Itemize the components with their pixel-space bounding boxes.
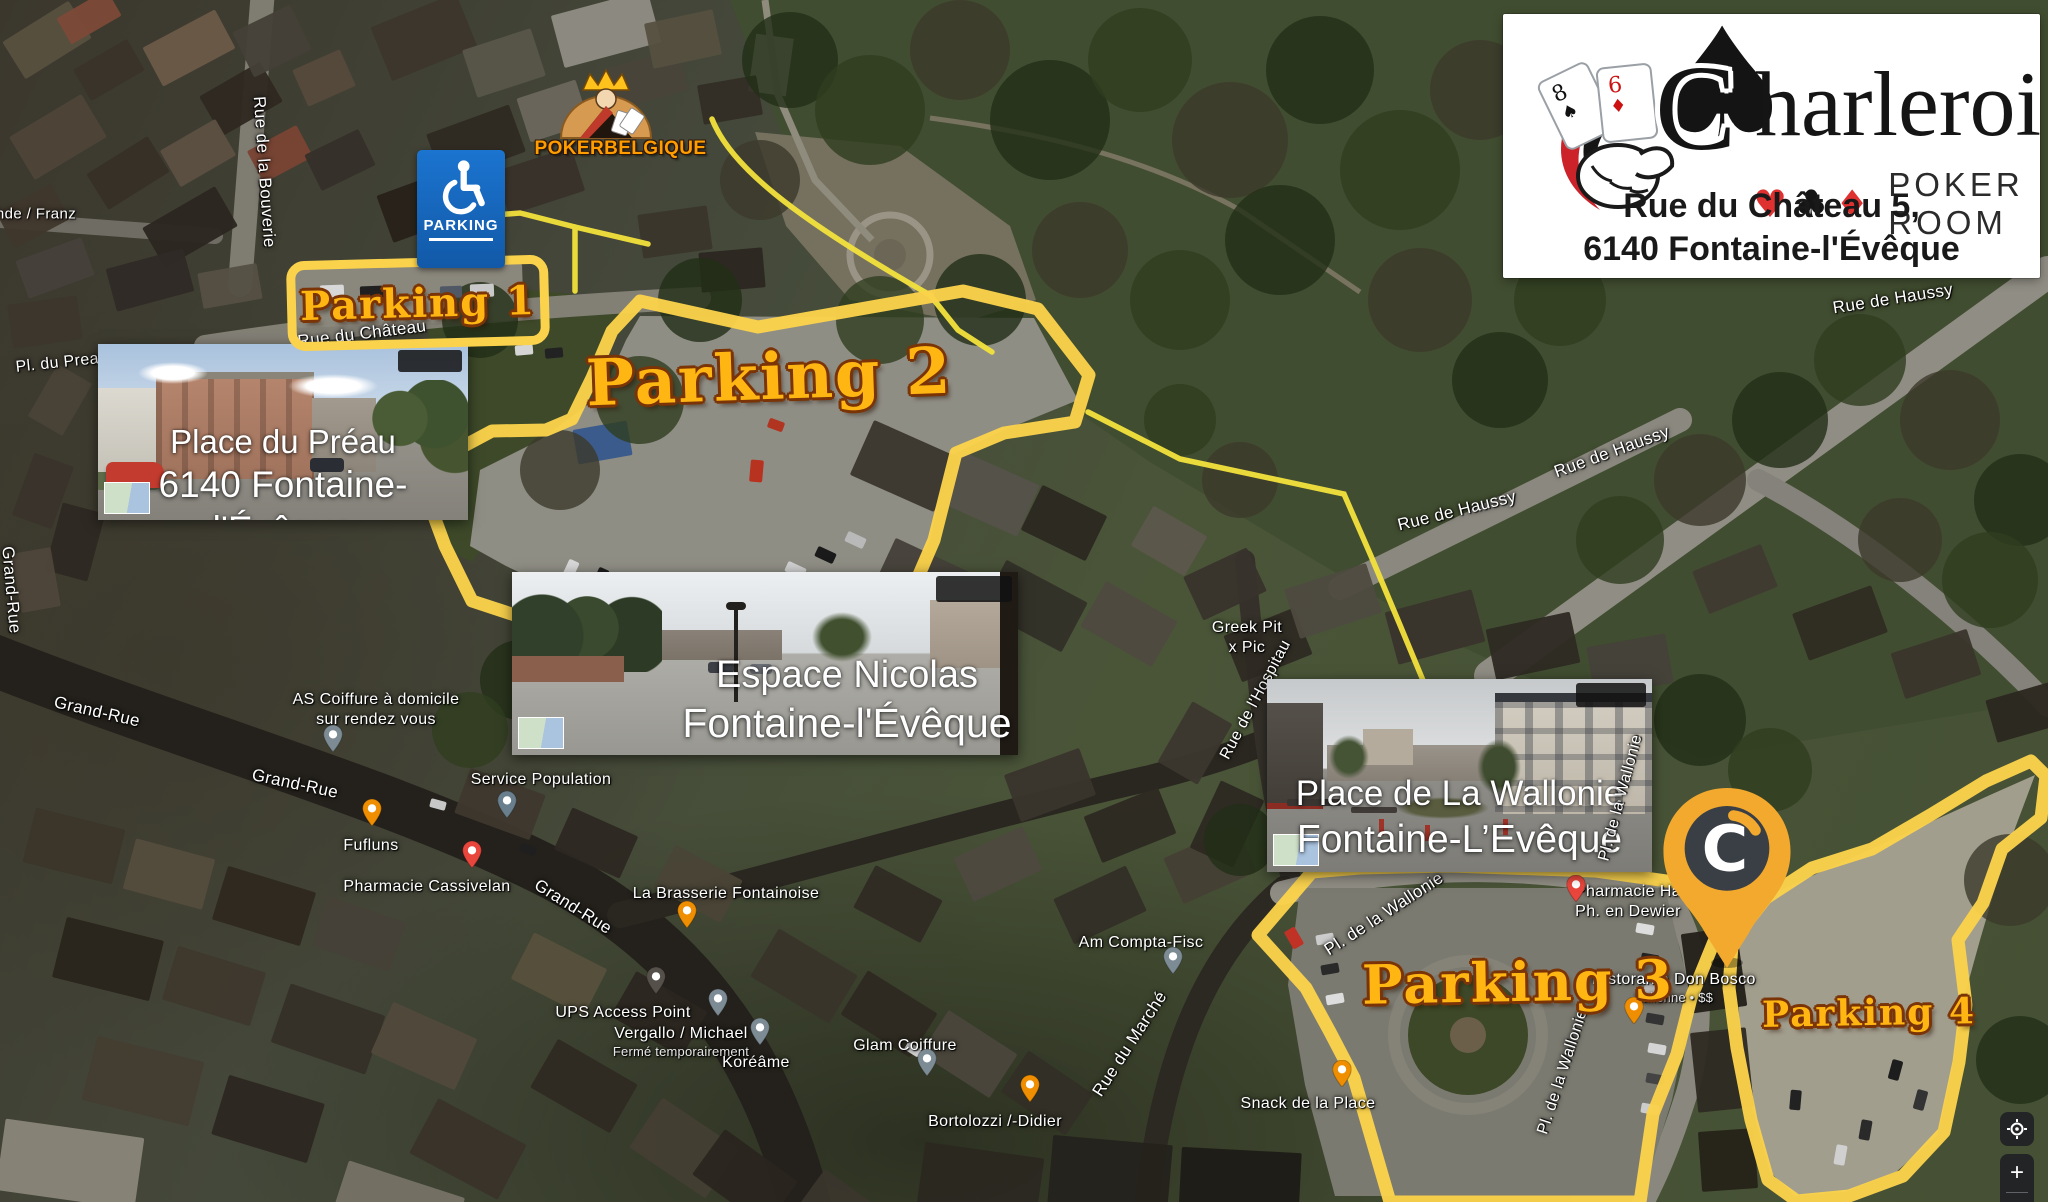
address-block: Rue du Château 5, 6140 Fontaine-l'Évêque — [1503, 185, 2040, 270]
brand-name: harleroi — [1755, 58, 2041, 150]
wheelchair-icon — [434, 157, 488, 215]
parking1-outline-box: Parking 1 — [286, 255, 550, 352]
parking1-label: Parking 1 — [300, 276, 537, 329]
svg-text:♦: ♦ — [1609, 95, 1627, 118]
charleroi-map-pin-icon: C — [1663, 788, 1791, 968]
zoom-control: + − — [2000, 1154, 2034, 1202]
info-card: 8 ♠ 6 ♦ ♠ C harleroi ♥ ♣ ♦ POKER ROOM Ru… — [1503, 14, 2040, 278]
poker-king-icon — [528, 66, 713, 146]
my-location-button[interactable] — [2000, 1112, 2034, 1146]
zoom-in-button[interactable]: + — [2000, 1154, 2034, 1192]
pokerbelgique-logo: POKERBELGIQUE — [528, 66, 713, 170]
address-line1: Rue du Château 5, — [1503, 185, 2040, 228]
zoom-out-button[interactable]: − — [2000, 1193, 2034, 1202]
parking4-label: Parking 4 — [1762, 990, 1977, 1036]
map-canvas[interactable]: Rue de la BouverieRue du Châteaunde / Fr… — [0, 0, 2048, 1202]
brand-initial: C — [1655, 48, 1736, 170]
pokerbelgique-label: POKERBELGIQUE — [528, 138, 713, 160]
handicap-parking-sign: PARKING — [417, 150, 505, 268]
my-location-icon — [2007, 1119, 2027, 1139]
parking3-label: Parking 3 — [1361, 947, 1674, 1016]
street-label: Pl. de la Wallonie — [1595, 733, 1646, 863]
handicap-sign-label: PARKING — [423, 217, 498, 234]
parking2-label: Parking 2 — [585, 334, 954, 422]
address-line2: 6140 Fontaine-l'Évêque — [1503, 228, 2040, 271]
